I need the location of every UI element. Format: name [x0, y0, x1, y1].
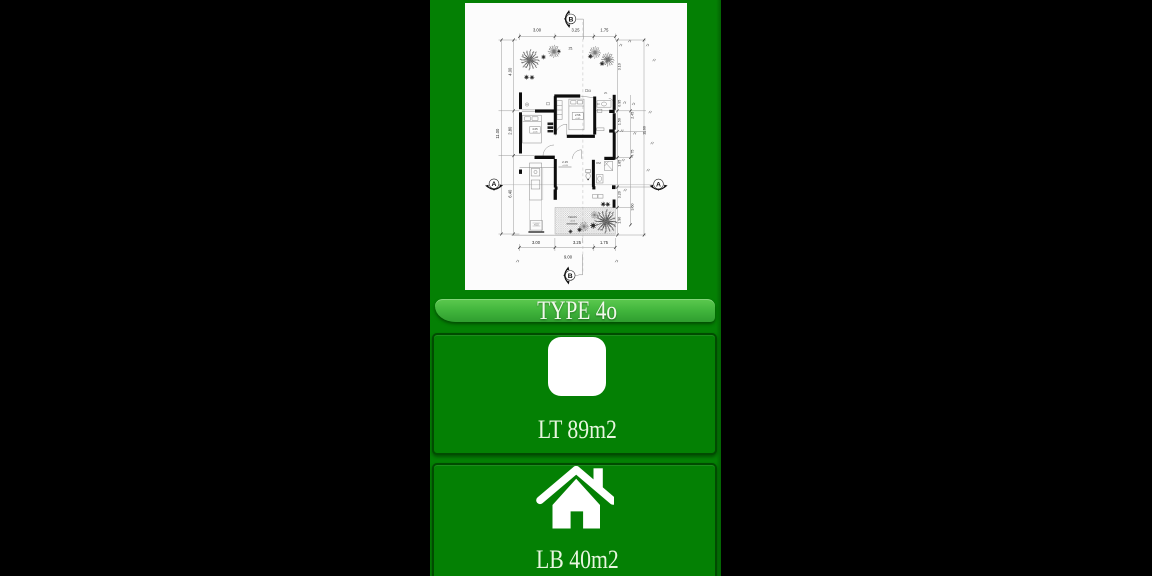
svg-text:6.40: 6.40 — [507, 189, 512, 198]
svg-text:25.: 25. — [569, 46, 574, 50]
svg-text:9.00: 9.00 — [564, 255, 573, 260]
svg-text:3.25: 3.25 — [573, 240, 582, 245]
svg-text:2.80: 2.80 — [507, 126, 512, 135]
svg-text:4.05: 4.05 — [532, 127, 538, 131]
svg-text:B: B — [568, 273, 573, 280]
svg-text:1.75: 1.75 — [600, 240, 609, 245]
svg-text:A: A — [492, 181, 497, 188]
svg-text:-0.02: -0.02 — [570, 220, 576, 222]
svg-text:40: 40 — [597, 103, 600, 106]
svg-text:TERAS: TERAS — [568, 215, 577, 219]
svg-text:+0.05: +0.05 — [532, 132, 538, 134]
svg-text:3.00: 3.00 — [532, 240, 541, 245]
svg-text:4.75: 4.75 — [631, 150, 635, 157]
svg-text:1.90: 1.90 — [618, 217, 622, 224]
svg-text:2.15: 2.15 — [562, 160, 568, 164]
svg-text:3.10: 3.10 — [618, 63, 622, 70]
svg-text:+0.05: +0.05 — [575, 118, 581, 120]
svg-text:1.75: 1.75 — [600, 27, 609, 32]
svg-text:2.45: 2.45 — [631, 112, 635, 119]
svg-text:B: B — [568, 16, 573, 23]
svg-text:11.00: 11.00 — [495, 128, 500, 139]
svg-text:2.56: 2.56 — [575, 113, 581, 117]
svg-text:4.00: 4.00 — [507, 67, 512, 76]
svg-text:A: A — [656, 181, 661, 188]
svg-text:0.95: 0.95 — [618, 100, 622, 107]
svg-text:KM: KM — [596, 161, 601, 165]
svg-text:+0.03: +0.03 — [562, 165, 568, 167]
svg-text:3.25: 3.25 — [572, 27, 581, 32]
svg-text:1.85: 1.85 — [618, 160, 622, 167]
svg-text:3.60: 3.60 — [631, 204, 635, 211]
svg-text:25.: 25. — [604, 91, 608, 95]
svg-text:3.20: 3.20 — [618, 191, 622, 198]
svg-text:11.60: 11.60 — [642, 126, 646, 135]
svg-text:3.00: 3.00 — [533, 27, 542, 32]
svg-text:1.50: 1.50 — [618, 118, 622, 125]
svg-text:+0.0: +0.0 — [534, 223, 539, 226]
